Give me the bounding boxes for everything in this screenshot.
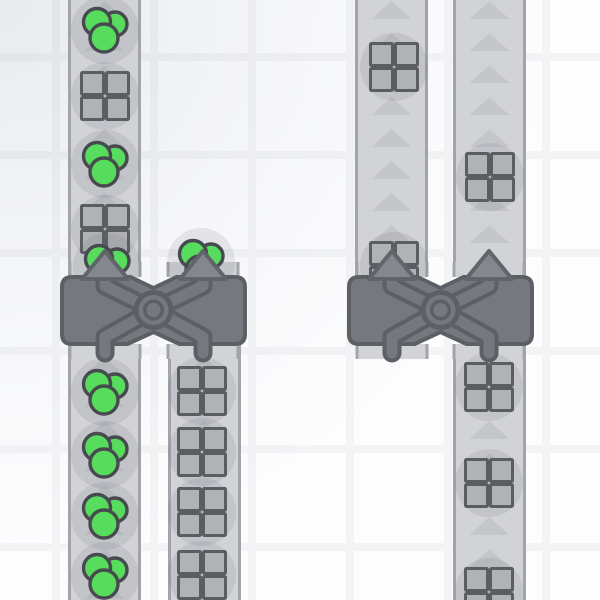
game-stage [0,0,600,600]
item-green-circles [71,358,139,426]
item-gray-squares [360,33,428,101]
item-gray-squares [168,357,236,425]
item-green-circles [71,421,139,489]
item-gray-squares [455,353,523,421]
item-gray-squares [168,418,236,486]
crossing-ring [147,303,161,317]
item-gray-squares [455,449,523,517]
conveyor-belt[interactable] [453,0,526,277]
game-viewport[interactable] [0,0,600,600]
item-gray-squares [456,143,524,211]
item-gray-squares [168,478,236,546]
item-gray-squares [71,62,139,130]
item-green-circles [71,482,139,550]
item-green-circles [71,130,139,198]
crossing-ring [434,303,448,317]
